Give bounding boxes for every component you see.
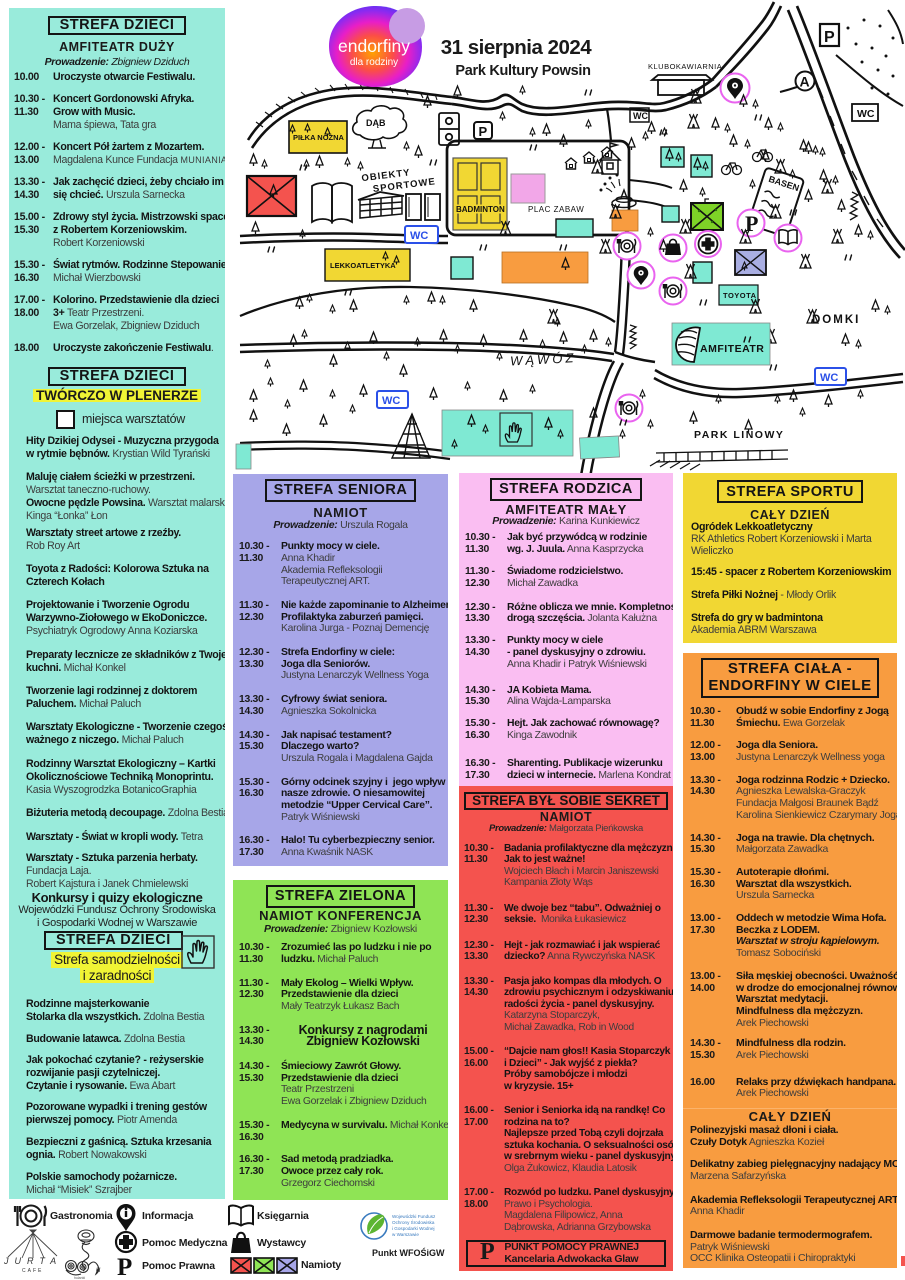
svg-text:Namioty: Namioty	[301, 1259, 341, 1271]
svg-text:KLUBOKAWIARNIA: KLUBOKAWIARNIA	[648, 62, 722, 71]
svg-text:DĄB: DĄB	[366, 118, 386, 128]
svg-text:Punkt WFOŚiGW: Punkt WFOŚiGW	[372, 1247, 445, 1258]
svg-text:hulanki: hulanki	[74, 1276, 85, 1280]
svg-text:P: P	[479, 124, 488, 139]
svg-text:A: A	[800, 74, 810, 90]
svg-text:u: u	[96, 1265, 101, 1274]
svg-text:dla rodziny: dla rodziny	[350, 57, 398, 68]
svg-text:DOMKI: DOMKI	[812, 314, 860, 326]
svg-text:WC: WC	[382, 395, 400, 407]
svg-text:WC: WC	[410, 230, 428, 242]
svg-text:PLAC ZABAW: PLAC ZABAW	[528, 205, 584, 214]
svg-text:WC: WC	[820, 372, 838, 384]
svg-text:AMFITEATR: AMFITEATR	[700, 343, 764, 355]
svg-text:i Gospodarki Wodnej: i Gospodarki Wodnej	[392, 1226, 435, 1231]
svg-text:Pomoc Medyczna: Pomoc Medyczna	[142, 1237, 228, 1249]
svg-text:w Warszawie: w Warszawie	[392, 1232, 419, 1237]
svg-text:P: P	[824, 29, 835, 46]
svg-text:PIŁKA NOŻNA: PIŁKA NOŻNA	[293, 133, 345, 142]
svg-text:Informacja: Informacja	[142, 1210, 193, 1222]
svg-text:Wojewódzki Fundusz: Wojewódzki Fundusz	[392, 1214, 436, 1219]
svg-text:Wystawcy: Wystawcy	[257, 1237, 306, 1249]
svg-text:endorfiny: endorfiny	[338, 36, 410, 56]
svg-text:Ochrony Środowiska: Ochrony Środowiska	[392, 1218, 435, 1225]
svg-text:WC: WC	[857, 108, 875, 120]
svg-text:WC: WC	[633, 111, 648, 121]
svg-text:Pomoc Prawna: Pomoc Prawna	[142, 1260, 215, 1272]
svg-text:BADMINTON: BADMINTON	[456, 205, 505, 214]
svg-text:PARK LINOWY: PARK LINOWY	[694, 429, 784, 441]
svg-text:JURTA: JURTA	[3, 1256, 62, 1266]
svg-text:Gastronomia: Gastronomia	[50, 1210, 113, 1222]
svg-text:Księgarnia: Księgarnia	[257, 1210, 309, 1222]
svg-text:TOYOTA: TOYOTA	[723, 291, 757, 300]
svg-text:P: P	[117, 1254, 132, 1280]
svg-text:LEKKOATLETYKA: LEKKOATLETYKA	[330, 261, 396, 270]
svg-text:WĄWÓZ: WĄWÓZ	[510, 350, 577, 368]
svg-text:CAFE: CAFE	[22, 1268, 43, 1274]
